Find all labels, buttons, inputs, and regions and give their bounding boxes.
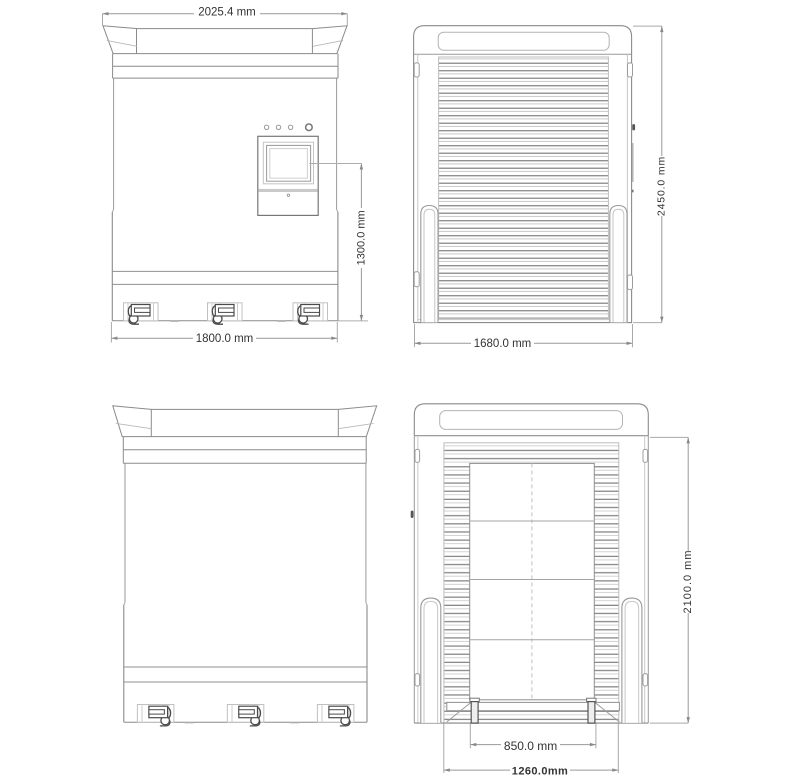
svg-text:1300.0 mm: 1300.0 mm — [355, 210, 367, 265]
svg-text:1800.0 mm: 1800.0 mm — [196, 333, 254, 345]
svg-text:2025.4 mm: 2025.4 mm — [198, 7, 256, 19]
svg-text:2100.0 mm: 2100.0 mm — [682, 549, 694, 613]
svg-text:1680.0 mm: 1680.0 mm — [474, 338, 532, 350]
svg-text:2450.0 mm: 2450.0 mm — [655, 156, 667, 216]
svg-text:850.0 mm: 850.0 mm — [504, 739, 557, 753]
svg-text:1260.0mm: 1260.0mm — [512, 765, 568, 777]
